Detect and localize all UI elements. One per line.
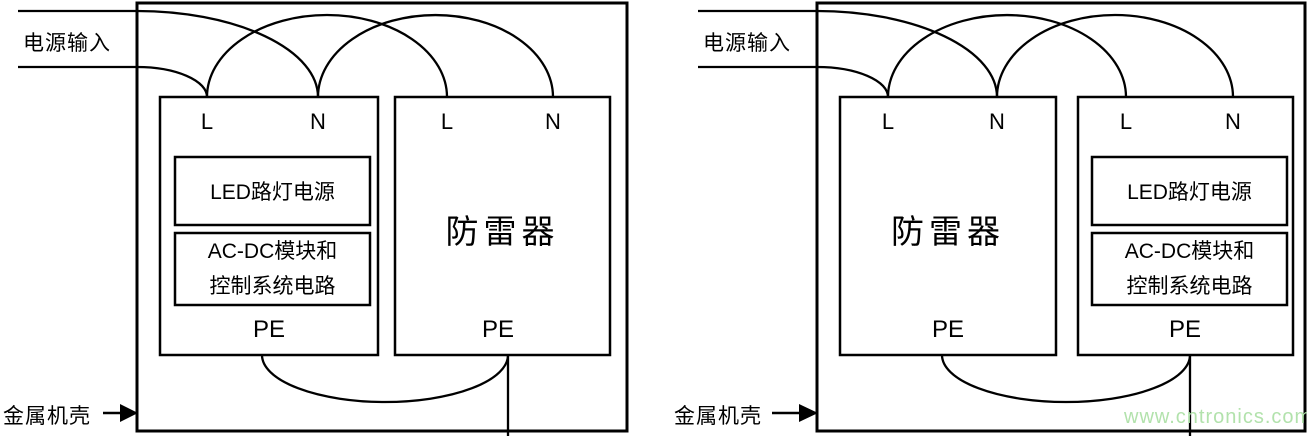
left-power-input-label: 电源输入 — [23, 27, 111, 57]
right-pe-link-wire — [942, 355, 1190, 402]
left-surge-terminal-n: N — [533, 109, 573, 135]
left-case-arrow-icon — [120, 404, 138, 422]
left-live-input-wire — [18, 67, 207, 97]
right-surge-protector-title: 防雷器 — [840, 205, 1056, 253]
left-surge-pe-label: PE — [468, 316, 528, 344]
left-surge-protector-title: 防雷器 — [395, 205, 610, 253]
right-acdc-module-line2: 控制系统电路 — [1127, 269, 1253, 304]
right-live-input-wire — [698, 67, 888, 97]
left-led-power-module-label: LED路灯电源 — [175, 157, 370, 225]
right-led-unit-terminal-l: L — [1106, 109, 1146, 135]
left-acdc-module-line1: AC-DC模块和 — [208, 234, 338, 269]
dual-surge-protection-wiring-diagram: 电源输入 L N L N LED路灯电源 AC-DC模块和 控制系统电路 PE … — [0, 0, 1307, 436]
right-surge-pe-label: PE — [918, 316, 978, 344]
right-led-unit-terminal-n: N — [1213, 109, 1253, 135]
left-led-unit-terminal-l: L — [187, 109, 227, 135]
right-acdc-module-line1: AC-DC模块和 — [1125, 234, 1255, 269]
left-led-unit-pe-label: PE — [239, 316, 299, 344]
left-acdc-module-line2: 控制系统电路 — [210, 269, 336, 304]
right-surge-terminal-l: L — [868, 109, 908, 135]
left-pe-link-wire — [262, 355, 508, 402]
site-watermark: www.cntronics.com — [1124, 406, 1307, 429]
right-acdc-module-label: AC-DC模块和 控制系统电路 — [1092, 233, 1287, 305]
left-surge-terminal-l: L — [427, 109, 467, 135]
left-acdc-module-label: AC-DC模块和 控制系统电路 — [175, 233, 370, 305]
right-metal-case-label: 金属机壳 — [674, 400, 762, 430]
right-power-input-label: 电源输入 — [703, 27, 791, 57]
left-neutral-link-wire — [318, 15, 553, 97]
right-case-arrow-icon — [799, 404, 818, 422]
left-led-unit-terminal-n: N — [298, 109, 338, 135]
left-metal-case-label: 金属机壳 — [3, 400, 91, 430]
right-led-unit-pe-label: PE — [1155, 316, 1215, 344]
right-surge-terminal-n: N — [977, 109, 1017, 135]
right-neutral-link-wire — [997, 15, 1233, 97]
right-led-power-module-label: LED路灯电源 — [1092, 157, 1287, 225]
